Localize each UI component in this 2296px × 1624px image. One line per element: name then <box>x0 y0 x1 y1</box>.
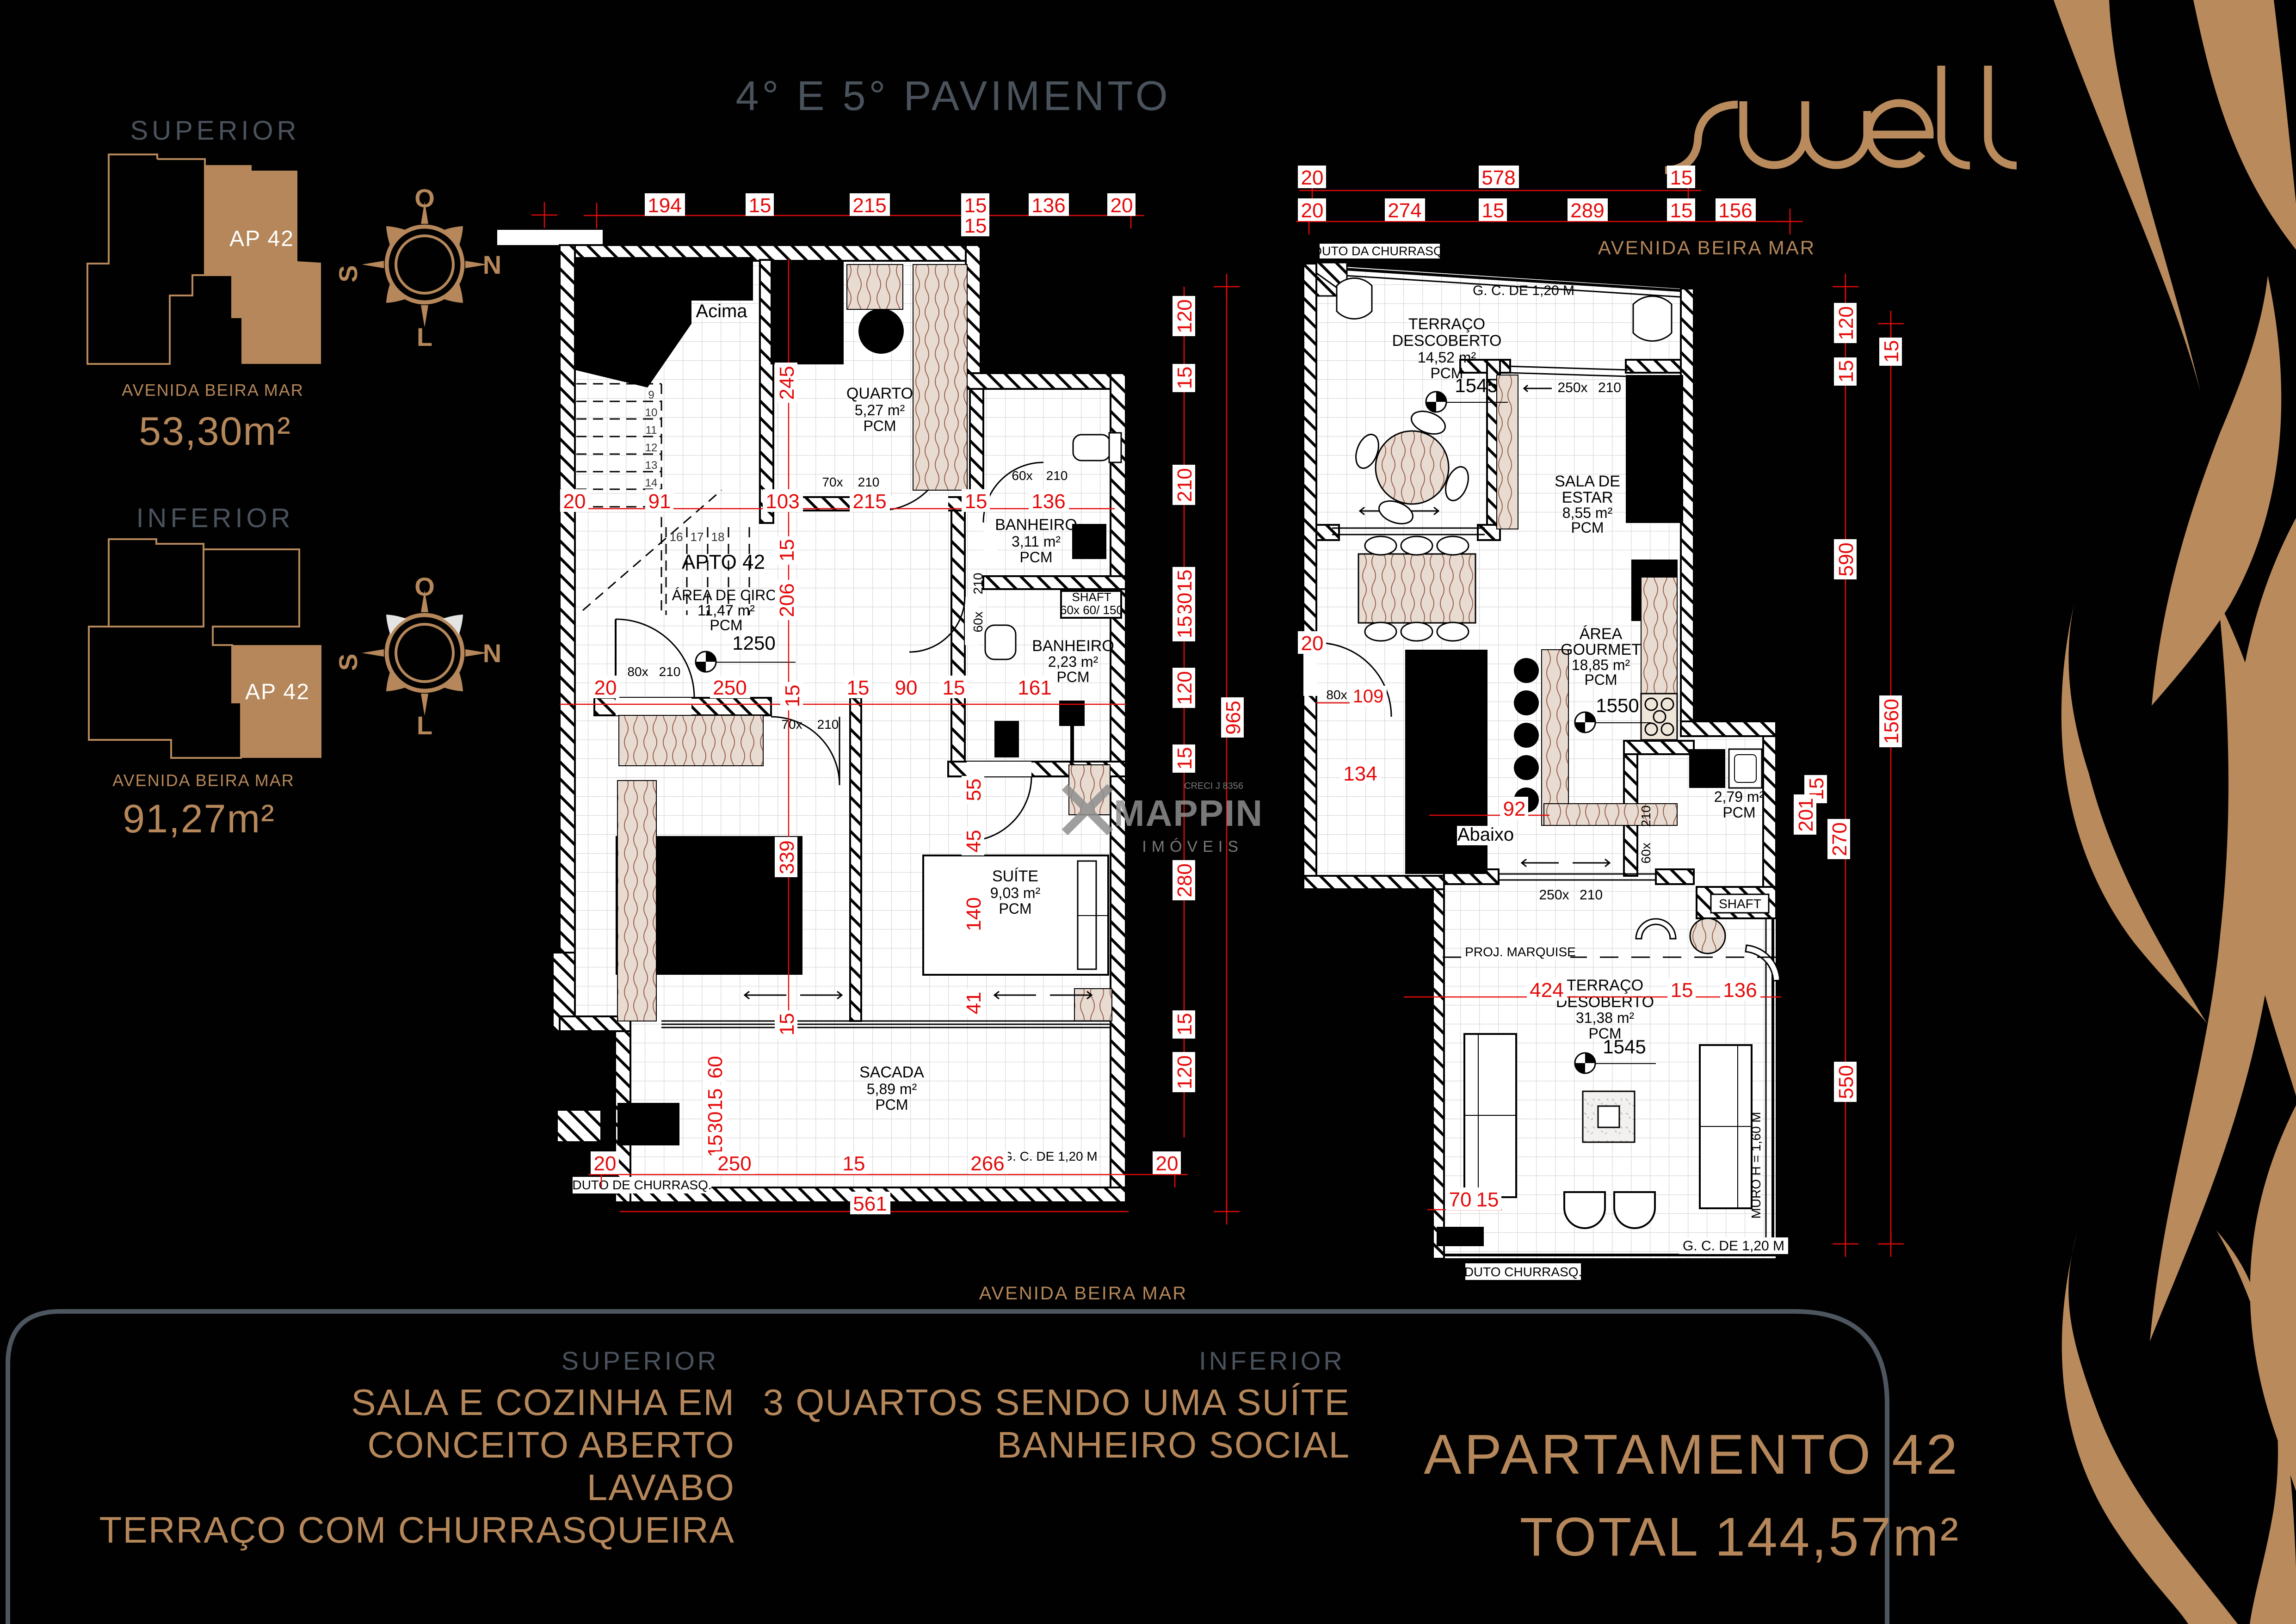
svg-text:15: 15 <box>776 539 798 562</box>
svg-text:14: 14 <box>645 477 658 489</box>
svg-text:274: 274 <box>1388 199 1421 222</box>
svg-text:TOTAL 144,57m²: TOTAL 144,57m² <box>1520 1507 1960 1568</box>
svg-text:SHAFT: SHAFT <box>1072 590 1111 604</box>
svg-text:N: N <box>483 639 501 668</box>
svg-text:70: 70 <box>1449 1188 1472 1211</box>
svg-text:70x: 70x <box>822 475 843 489</box>
svg-text:15: 15 <box>1476 1188 1499 1211</box>
svg-text:136: 136 <box>1031 194 1065 217</box>
svg-text:L: L <box>417 711 432 740</box>
svg-text:SUPERIOR: SUPERIOR <box>130 116 300 146</box>
svg-text:1545: 1545 <box>1603 1036 1646 1058</box>
svg-text:55: 55 <box>963 779 985 801</box>
svg-text:60x 60/ 150: 60x 60/ 150 <box>1060 603 1123 617</box>
svg-text:AP 42: AP 42 <box>245 680 310 704</box>
svg-text:289: 289 <box>1570 199 1604 222</box>
svg-text:5,27 m²: 5,27 m² <box>855 402 905 418</box>
svg-text:136: 136 <box>1723 979 1757 1002</box>
svg-text:31,38 m²: 31,38 m² <box>1576 1009 1635 1026</box>
svg-text:53,30m²: 53,30m² <box>139 409 291 454</box>
svg-text:90: 90 <box>895 677 918 699</box>
svg-text:AVENIDA BEIRA MAR: AVENIDA BEIRA MAR <box>122 381 303 400</box>
svg-text:TERRAÇO: TERRAÇO <box>1408 315 1485 333</box>
svg-text:91: 91 <box>648 490 671 513</box>
svg-text:1550: 1550 <box>1596 695 1639 716</box>
svg-text:2,79 m²: 2,79 m² <box>1714 788 1765 805</box>
svg-text:1560: 1560 <box>1880 699 1903 744</box>
svg-text:INFERIOR: INFERIOR <box>136 503 294 533</box>
svg-text:210: 210 <box>971 573 985 595</box>
svg-text:APTO 42: APTO 42 <box>682 551 765 573</box>
svg-text:4° E 5° PAVIMENTO: 4° E 5° PAVIMENTO <box>735 73 1171 119</box>
svg-text:15: 15 <box>1670 199 1693 222</box>
svg-text:BANHEIRO: BANHEIRO <box>1032 637 1114 655</box>
svg-text:SHAFT: SHAFT <box>1719 897 1761 911</box>
svg-text:MAPPIN: MAPPIN <box>1114 793 1263 834</box>
svg-text:206: 206 <box>776 583 798 617</box>
svg-text:15: 15 <box>964 215 987 237</box>
svg-text:15: 15 <box>1880 340 1903 363</box>
svg-text:Abaixo: Abaixo <box>1457 824 1514 845</box>
svg-text:9: 9 <box>648 389 654 401</box>
svg-text:120: 120 <box>1173 1055 1196 1089</box>
svg-text:70x: 70x <box>781 717 802 732</box>
svg-text:PCM: PCM <box>999 900 1031 917</box>
svg-text:15: 15 <box>1173 747 1196 770</box>
svg-text:12: 12 <box>645 442 658 454</box>
svg-text:PCM: PCM <box>710 617 742 634</box>
svg-text:L: L <box>417 322 432 351</box>
svg-text:11,47 m²: 11,47 m² <box>697 602 755 619</box>
svg-text:15: 15 <box>1173 1013 1196 1036</box>
svg-text:60x: 60x <box>1012 468 1032 483</box>
svg-text:ÁREA: ÁREA <box>1580 625 1623 643</box>
svg-text:210: 210 <box>1173 468 1196 502</box>
svg-text:3,11 m²: 3,11 m² <box>1012 533 1061 550</box>
svg-text:91,27m²: 91,27m² <box>123 797 275 841</box>
svg-text:ÁREA DE CIRC.: ÁREA DE CIRC. <box>672 587 781 603</box>
svg-text:DUTO DA CHURRASQ.: DUTO DA CHURRASQ. <box>1313 244 1446 258</box>
svg-text:30: 30 <box>704 1112 727 1134</box>
svg-text:G. C. DE 1,20 M: G. C. DE 1,20 M <box>1473 283 1574 298</box>
svg-text:14,52 m²: 14,52 m² <box>1418 349 1476 366</box>
svg-text:AVENIDA BEIRA MAR: AVENIDA BEIRA MAR <box>979 1283 1187 1304</box>
svg-text:5,89 m²: 5,89 m² <box>867 1081 917 1097</box>
svg-text:15: 15 <box>1482 199 1505 222</box>
svg-text:210: 210 <box>659 664 681 679</box>
svg-text:16: 16 <box>670 530 683 544</box>
svg-text:PCM: PCM <box>1722 804 1755 821</box>
svg-text:15: 15 <box>943 677 965 699</box>
svg-text:15: 15 <box>1670 166 1693 189</box>
svg-text:AP 42: AP 42 <box>229 227 294 251</box>
svg-text:140: 140 <box>963 897 985 931</box>
svg-text:APARTAMENTO 42: APARTAMENTO 42 <box>1424 1423 1960 1486</box>
svg-text:SACADA: SACADA <box>859 1064 924 1081</box>
svg-text:20: 20 <box>594 1152 617 1175</box>
svg-text:N: N <box>483 250 501 279</box>
svg-text:210: 210 <box>817 717 839 732</box>
svg-text:PCM: PCM <box>875 1096 908 1113</box>
svg-text:210: 210 <box>1580 887 1603 903</box>
svg-text:SALA DE: SALA DE <box>1555 473 1620 490</box>
svg-text:20: 20 <box>1111 194 1133 217</box>
svg-text:20: 20 <box>1301 632 1324 655</box>
svg-text:20: 20 <box>563 490 586 513</box>
svg-text:15: 15 <box>776 1013 798 1036</box>
svg-text:339: 339 <box>776 840 798 874</box>
svg-text:60x: 60x <box>1639 843 1653 863</box>
svg-text:201: 201 <box>1795 798 1817 831</box>
svg-text:S: S <box>333 653 363 671</box>
svg-text:PROJ. MARQUISE: PROJ. MARQUISE <box>1465 945 1576 959</box>
svg-text:161: 161 <box>1018 677 1051 699</box>
svg-text:215: 215 <box>852 194 886 217</box>
svg-text:80x: 80x <box>1326 688 1347 702</box>
svg-text:BANHEIRO: BANHEIRO <box>995 516 1077 534</box>
svg-text:280: 280 <box>1173 863 1196 897</box>
svg-text:45: 45 <box>963 830 985 853</box>
svg-text:20: 20 <box>1301 199 1324 222</box>
svg-text:Acima: Acima <box>696 301 747 321</box>
svg-text:1250: 1250 <box>732 632 775 654</box>
svg-text:20: 20 <box>1301 166 1324 189</box>
svg-text:20: 20 <box>1156 1152 1179 1175</box>
svg-text:DUTO DE CHURRASQ.: DUTO DE CHURRASQ. <box>572 1178 711 1192</box>
svg-text:250x: 250x <box>1557 380 1587 395</box>
svg-text:550: 550 <box>1835 1065 1858 1099</box>
svg-text:210: 210 <box>1598 380 1621 395</box>
svg-text:AVENIDA BEIRA MAR: AVENIDA BEIRA MAR <box>112 771 294 790</box>
svg-text:DESCOBERTO: DESCOBERTO <box>1392 332 1502 350</box>
svg-text:15: 15 <box>749 194 772 217</box>
svg-text:PCM: PCM <box>1571 519 1604 536</box>
svg-text:194: 194 <box>648 194 681 217</box>
svg-text:TERRAÇO COM CHURRASQUEIRA: TERRAÇO COM CHURRASQUEIRA <box>99 1509 735 1550</box>
svg-text:15: 15 <box>843 1152 865 1175</box>
svg-text:15: 15 <box>964 194 987 217</box>
svg-text:INFERIOR: INFERIOR <box>1199 1346 1345 1375</box>
svg-text:80x: 80x <box>627 664 648 679</box>
svg-text:LAVABO: LAVABO <box>587 1467 735 1508</box>
svg-text:2,23 m²: 2,23 m² <box>1048 653 1099 670</box>
svg-text:210: 210 <box>1046 468 1068 483</box>
svg-text:245: 245 <box>776 366 798 400</box>
svg-text:CRECI J 8356: CRECI J 8356 <box>1184 781 1243 791</box>
svg-text:109: 109 <box>1353 686 1384 707</box>
svg-text:561: 561 <box>853 1193 887 1215</box>
svg-text:MURO H = 1,60 M: MURO H = 1,60 M <box>1749 1112 1763 1218</box>
svg-text:9,03 m²: 9,03 m² <box>990 885 1041 901</box>
svg-text:15: 15 <box>781 685 804 707</box>
svg-text:18: 18 <box>711 530 725 544</box>
svg-text:210: 210 <box>1639 806 1653 827</box>
svg-text:250: 250 <box>713 677 747 699</box>
svg-text:120: 120 <box>1835 306 1858 340</box>
svg-text:QUARTO: QUARTO <box>846 385 913 402</box>
svg-text:120: 120 <box>1173 299 1196 333</box>
svg-text:G. C. DE 1,20 M: G. C. DE 1,20 M <box>1002 1149 1097 1163</box>
svg-text:CONCEITO ABERTO: CONCEITO ABERTO <box>367 1424 735 1465</box>
svg-text:O: O <box>414 184 435 213</box>
svg-text:266: 266 <box>970 1152 1004 1175</box>
svg-text:270: 270 <box>1828 822 1851 856</box>
svg-text:250: 250 <box>717 1152 751 1175</box>
svg-text:10: 10 <box>645 406 658 419</box>
svg-text:103: 103 <box>765 490 799 513</box>
svg-text:BANHEIRO SOCIAL: BANHEIRO SOCIAL <box>997 1424 1350 1465</box>
svg-text:15: 15 <box>1835 360 1858 383</box>
svg-text:41: 41 <box>963 992 985 1015</box>
svg-text:DUTO CHURRASQ.: DUTO CHURRASQ. <box>1464 1265 1582 1279</box>
svg-text:17: 17 <box>691 530 704 544</box>
svg-text:PCM: PCM <box>863 418 896 434</box>
svg-text:DESOBERTO: DESOBERTO <box>1556 993 1654 1011</box>
svg-text:60: 60 <box>704 1056 727 1079</box>
svg-text:GOURMET: GOURMET <box>1561 641 1641 658</box>
svg-text:15: 15 <box>1173 616 1196 639</box>
svg-text:3 QUARTOS SENDO UMA SUÍTE: 3 QUARTOS SENDO UMA SUÍTE <box>763 1382 1350 1423</box>
svg-text:134: 134 <box>1343 763 1377 785</box>
svg-text:120: 120 <box>1173 671 1196 705</box>
svg-text:965: 965 <box>1222 701 1245 734</box>
svg-text:8,55 m²: 8,55 m² <box>1562 504 1613 521</box>
svg-text:590: 590 <box>1835 542 1858 576</box>
svg-text:PCM: PCM <box>1584 671 1617 688</box>
svg-text:G. C. DE 1,20 M: G. C. DE 1,20 M <box>1683 1238 1784 1254</box>
svg-text:92: 92 <box>1503 798 1526 820</box>
svg-text:S: S <box>333 265 363 282</box>
svg-text:TERRAÇO: TERRAÇO <box>1567 977 1643 994</box>
svg-text:250x: 250x <box>1539 887 1569 903</box>
svg-text:215: 215 <box>852 490 886 513</box>
svg-text:1545: 1545 <box>1455 375 1498 396</box>
svg-text:15: 15 <box>847 677 870 699</box>
svg-text:424: 424 <box>1530 979 1563 1002</box>
svg-text:SUÍTE: SUÍTE <box>992 867 1038 885</box>
svg-text:15: 15 <box>1173 570 1196 592</box>
svg-text:ESTAR: ESTAR <box>1562 489 1613 506</box>
svg-text:SUPERIOR: SUPERIOR <box>562 1346 719 1375</box>
svg-text:SALA E COZINHA EM: SALA E COZINHA EM <box>351 1382 735 1423</box>
svg-text:PCM: PCM <box>1019 549 1052 566</box>
svg-text:15: 15 <box>704 1089 727 1111</box>
svg-text:30: 30 <box>1173 593 1196 615</box>
svg-text:11: 11 <box>646 424 657 437</box>
svg-text:156: 156 <box>1718 199 1752 222</box>
svg-text:PCM: PCM <box>1056 669 1089 685</box>
svg-text:15: 15 <box>1173 367 1196 389</box>
svg-text:15: 15 <box>1671 979 1693 1002</box>
svg-text:AVENIDA BEIRA MAR: AVENIDA BEIRA MAR <box>1598 237 1815 258</box>
svg-text:20: 20 <box>594 677 617 699</box>
svg-text:210: 210 <box>858 475 880 489</box>
svg-text:136: 136 <box>1031 490 1065 513</box>
svg-text:IMÓVEIS: IMÓVEIS <box>1142 838 1243 855</box>
svg-text:578: 578 <box>1481 166 1515 189</box>
svg-text:60x: 60x <box>971 611 985 632</box>
svg-text:O: O <box>414 572 435 601</box>
svg-text:15: 15 <box>965 490 988 513</box>
svg-text:18,85 m²: 18,85 m² <box>1572 657 1630 673</box>
svg-text:13: 13 <box>645 459 658 472</box>
